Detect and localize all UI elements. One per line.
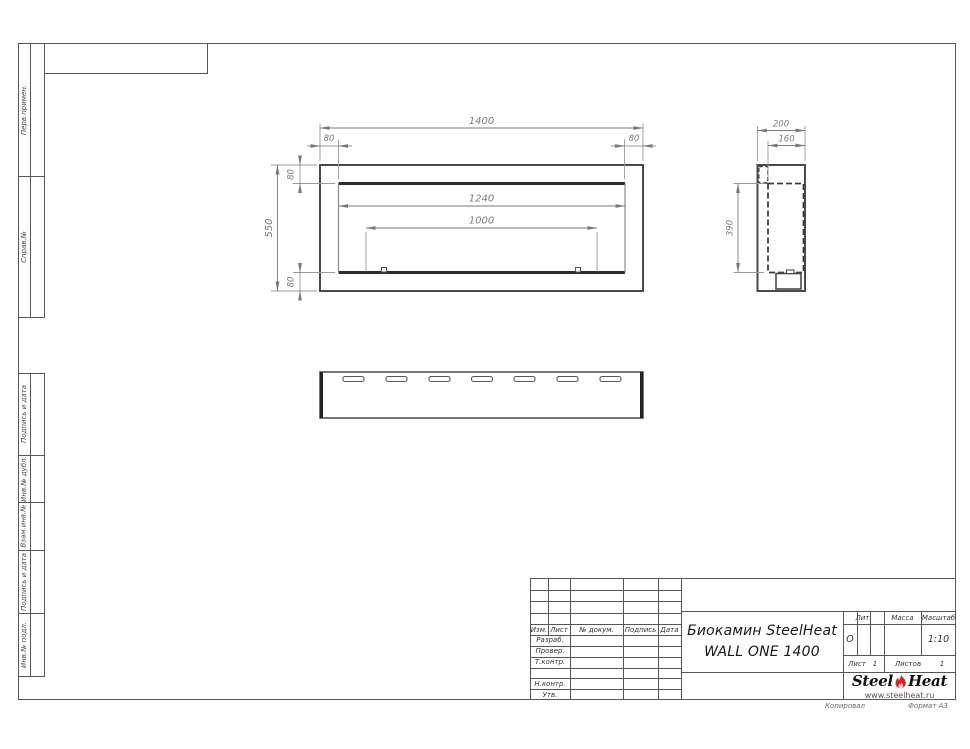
dim-front-total-width: 1400 (469, 116, 494, 127)
burner-clip-left (382, 268, 387, 273)
scale-label: Масштаб (921, 611, 956, 624)
company-logo: Steel Heat www.steelheat.ru (844, 672, 955, 700)
row-utv: Утв. (530, 689, 570, 700)
logo-website: www.steelheat.ru (865, 691, 935, 700)
row-prover: Провер. (530, 646, 570, 657)
drawing-sheet: Перв.примен. Справ.№ Подпись и дата Инв.… (0, 0, 970, 749)
sheets-value: 1 (930, 655, 954, 672)
row-razrab: Разраб. (530, 635, 570, 646)
side-view (758, 165, 806, 291)
flame-icon (894, 674, 907, 690)
dim-front-opening-width: 1240 (469, 194, 494, 205)
col-data: Дата (658, 624, 681, 635)
burner-clip-right (576, 268, 581, 273)
col-izm: Изм. (530, 624, 548, 635)
dim-side-depth: 200 (773, 120, 789, 130)
vent-slots (343, 377, 621, 382)
copied-label: Копировал (825, 702, 865, 710)
col-podpis: Подпись (623, 624, 658, 635)
dim-front-border-top: 80 (287, 169, 297, 180)
lit-value: О (843, 624, 857, 655)
dim-side-inner-height: 390 (726, 220, 736, 236)
dim-front-offset-right: 80 (629, 134, 640, 144)
mass-value (884, 624, 921, 655)
side-dimensions: 200 160 390 (726, 120, 806, 273)
document-title-line2: WALL ONE 1400 (704, 642, 820, 662)
dim-front-offset-left: 80 (324, 134, 335, 144)
row-nkontr: Н.контр. (530, 678, 570, 689)
lit-label: Лит. (843, 611, 884, 624)
dim-front-height: 550 (264, 218, 275, 237)
col-no-dokum: № докум. (570, 624, 623, 635)
dim-side-inner-depth: 160 (778, 135, 794, 145)
col-list: Лист (548, 624, 570, 635)
document-title-line1: Биокамин SteelHeat (687, 621, 837, 641)
logo-text-steel: Steel (852, 672, 893, 690)
document-title: Биокамин SteelHeat WALL ONE 1400 (681, 611, 843, 672)
dim-front-burner-spacing: 1000 (469, 216, 494, 227)
bottom-view (320, 372, 643, 418)
row-tkontr: Т.контр. (530, 657, 570, 668)
scale-value: 1:10 (921, 624, 956, 655)
sheets-label: Листов (886, 655, 930, 672)
side-burner-block (776, 274, 801, 290)
mass-label: Масса (884, 611, 921, 624)
format-label: Формат А3 (908, 702, 948, 710)
dim-front-border-bottom: 80 (287, 277, 297, 288)
row-empty (530, 668, 570, 679)
sheet-value: 1 (866, 655, 884, 672)
logo-text-heat: Heat (908, 672, 947, 690)
